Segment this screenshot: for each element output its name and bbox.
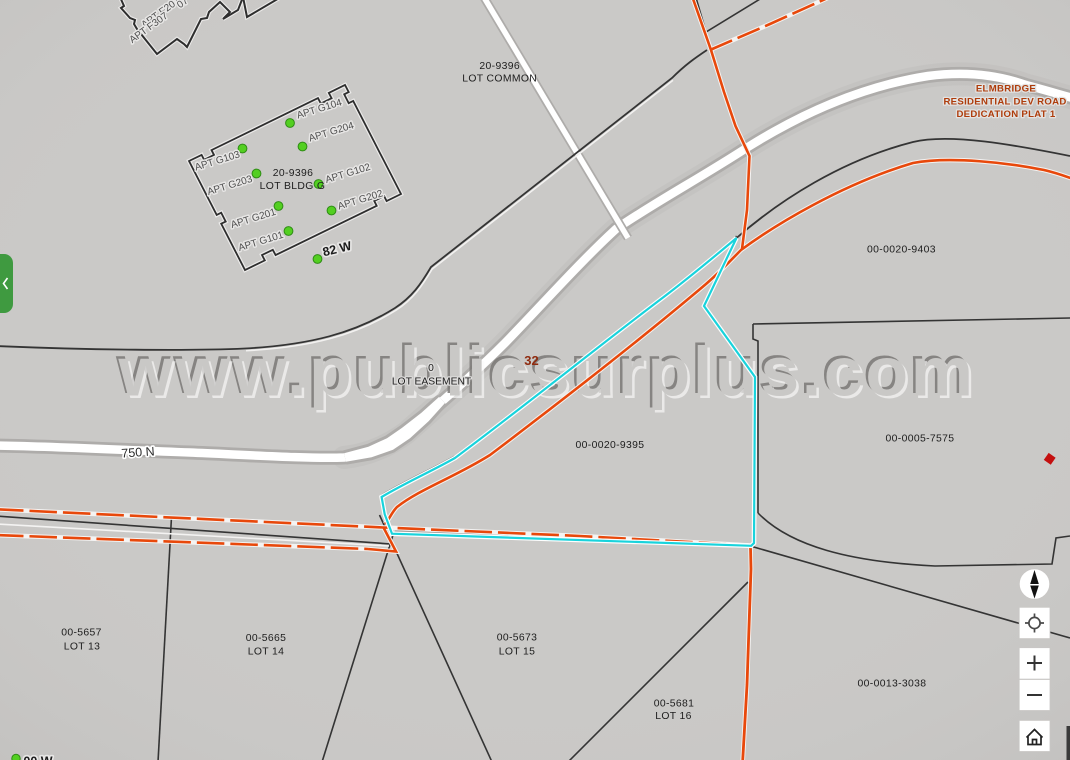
svg-text:00-0020-9403: 00-0020-9403 (867, 245, 936, 256)
svg-text:0: 0 (428, 363, 434, 374)
svg-text:32: 32 (524, 353, 538, 368)
svg-text:00-0005-7575: 00-0005-7575 (886, 434, 955, 445)
svg-text:ELMBRIDGE: ELMBRIDGE (976, 84, 1037, 95)
svg-text:00-0020-9395: 00-0020-9395 (576, 440, 645, 451)
svg-text:20-9396: 20-9396 (479, 61, 520, 72)
svg-text:LOT EASEMENT: LOT EASEMENT (392, 377, 472, 388)
svg-text:DEDICATION PLAT 1: DEDICATION PLAT 1 (956, 109, 1055, 120)
svg-text:LOT 15: LOT 15 (499, 647, 536, 658)
svg-text:LOT 16: LOT 16 (655, 711, 692, 722)
svg-text:750 N: 750 N (121, 444, 155, 460)
svg-text:LOT 13: LOT 13 (64, 642, 101, 653)
svg-text:00-5673: 00-5673 (497, 633, 538, 644)
svg-text:00 W: 00 W (23, 755, 52, 760)
svg-text:00-5681: 00-5681 (654, 699, 695, 710)
svg-text:LOT 14: LOT 14 (248, 647, 285, 658)
svg-text:00-5657: 00-5657 (61, 628, 102, 639)
svg-text:LOT BLDG G: LOT BLDG G (260, 181, 326, 192)
svg-text:00-0013-3038: 00-0013-3038 (858, 679, 927, 690)
svg-text:00-5665: 00-5665 (246, 633, 287, 644)
svg-text:RESIDENTIAL DEV ROAD: RESIDENTIAL DEV ROAD (943, 97, 1066, 108)
svg-text:20-9396: 20-9396 (273, 168, 314, 179)
svg-text:www.publicsurplus.com: www.publicsurplus.com (117, 333, 975, 411)
svg-text:LOT COMMON: LOT COMMON (462, 74, 537, 85)
